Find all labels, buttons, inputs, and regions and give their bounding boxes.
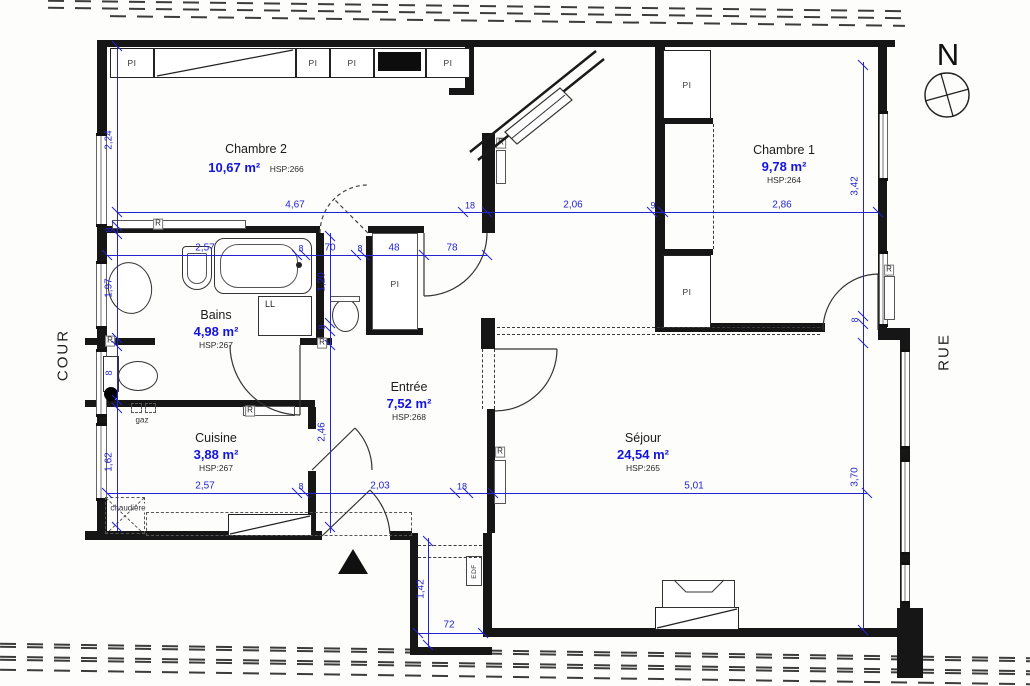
dimension-label: 2,57 (195, 243, 214, 254)
north-label: N (937, 37, 959, 73)
dimension-label: 48 (388, 243, 399, 254)
diagonal-window-line (511, 95, 565, 139)
dimension-label: 2,46 (317, 422, 328, 441)
dimension-label: 2,57 (195, 481, 214, 492)
radiator-table-trapezoid (674, 580, 724, 592)
room-area: 9,78 m² (753, 158, 815, 174)
room-label-sejour: Séjour 24,54 m² HSP:265 (617, 431, 669, 474)
door-arc-chambre2 (320, 185, 368, 233)
street-label-right: RUE (936, 333, 953, 371)
dimension-label: 3,70 (850, 467, 861, 486)
street-label-left: COUR (55, 329, 72, 381)
dimension-label: 2,24 (104, 130, 115, 149)
room-name: Séjour (617, 431, 669, 447)
room-label-cuisine: Cuisine 3,88 m² HSP:267 (194, 431, 239, 474)
dimension-label: 78 (446, 243, 457, 254)
dimension-label: 2,03 (370, 481, 389, 492)
dimension-label: 1,62 (104, 452, 115, 471)
room-area: 3,88 m² (194, 446, 239, 462)
room-name: Cuisine (194, 431, 239, 447)
dimension-label: 8 (357, 244, 362, 254)
door-arc-bains (230, 345, 300, 415)
room-hsp: HSP:264 (753, 175, 815, 186)
dim-line-mid (107, 255, 487, 256)
room-area: 7,52 m² (387, 395, 432, 411)
room-area: 24,54 m² (617, 446, 669, 462)
dimension-label: 8 (104, 370, 114, 375)
room-label-chambre2: Chambre 2 10,67 m² HSP:266 (208, 142, 304, 178)
dimension-label: 3,42 (850, 176, 861, 195)
room-hsp: HSP:268 (387, 412, 432, 423)
room-area: 10,67 m² (208, 160, 260, 175)
room-label-bains: Bains 4,98 m² HSP:267 (194, 308, 239, 351)
dimension-label: 1,42 (416, 579, 427, 598)
room-name: Chambre 1 (753, 143, 815, 159)
dimension-label: 2,86 (772, 200, 791, 211)
dimension-label: 72 (443, 620, 454, 631)
dimension-label: 1,20 (317, 272, 328, 291)
room-name: Entrée (387, 380, 432, 396)
dim-line-corridor-h (418, 633, 483, 634)
room-hsp: HSP:266 (270, 164, 304, 174)
dimension-label: 18 (457, 482, 467, 492)
dim-line-corridor-v (428, 538, 429, 648)
dimension-label: 4,67 (285, 200, 304, 211)
room-label-chambre1: Chambre 1 9,78 m² HSP:264 (753, 143, 815, 186)
dim-line-right (863, 62, 864, 630)
room-hsp: HSP:267 (194, 340, 239, 351)
room-label-entree: Entrée 7,52 m² HSP:268 (387, 380, 432, 423)
dimension-label: 8 (298, 482, 303, 492)
boiler-cross (106, 498, 144, 534)
dimension-label: 5,01 (684, 481, 703, 492)
room-hsp: HSP:265 (617, 463, 669, 474)
dimension-label: 8 (104, 227, 114, 232)
dimension-label: 9 (650, 201, 655, 211)
floor-plan: PI PI PI PI PI PI PI LL gaz chaudière R … (0, 0, 1030, 686)
dimension-label: 8 (850, 317, 860, 322)
closet-diagonal (157, 50, 293, 76)
dimension-label: 8 (298, 244, 303, 254)
room-hsp: HSP:267 (194, 463, 239, 474)
door-arc-sejour (495, 349, 557, 411)
room-area: 4,98 m² (194, 323, 239, 339)
dimension-label: 18 (465, 201, 475, 211)
dim-line-left (117, 46, 118, 531)
plan-linework (0, 0, 1030, 686)
dim-line-bottom (107, 493, 867, 494)
dim-line-center (330, 233, 331, 533)
dimension-label: 8 (317, 324, 327, 329)
window-diagonal-sejour (657, 609, 737, 628)
room-name: Chambre 2 (208, 142, 304, 158)
room-name: Bains (194, 308, 239, 324)
dimension-label: 70 (324, 243, 335, 254)
dim-line-top (117, 212, 878, 213)
window-diagonal-cuisine (230, 516, 310, 534)
dimension-label: 2,06 (563, 200, 582, 211)
dimension-label: 1,97 (104, 278, 115, 297)
compass-icon (925, 73, 969, 117)
diagonal-wall (470, 51, 604, 160)
